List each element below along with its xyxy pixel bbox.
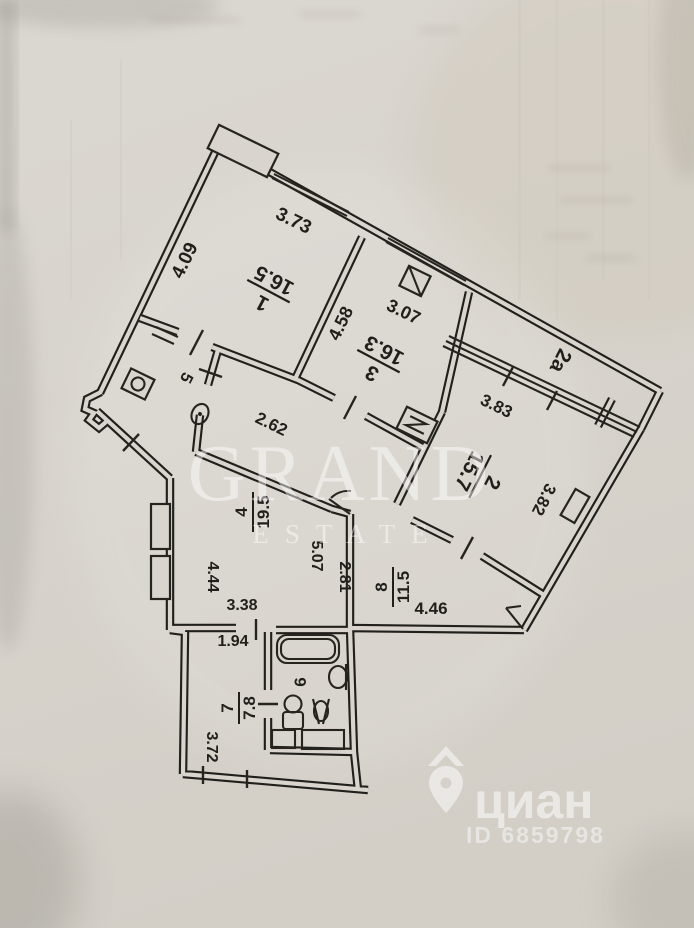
room-label-6: 6 [291,677,310,686]
svg-text:7.8: 7.8 [240,696,259,720]
dim-4.44: 4.44 [204,561,221,592]
portal-watermark-id: ID 6859798 [466,822,605,848]
agency-watermark-name: GRAND [188,430,492,518]
portal-watermark-name: циан [474,773,593,829]
left-wall-pilaster-1 [151,504,170,549]
svg-text:6: 6 [291,677,310,686]
dim-2.81: 2.81 [336,561,353,592]
agency-watermark-sub: ESTATE [252,519,443,549]
floor-plan-photo: 1 16.5 3 16.3 2 15.7 4 19.5 8 11.5 7 7.8 [0,0,694,928]
dim-1.94: 1.94 [217,633,248,650]
floor-plan-drawing: 1 16.5 3 16.3 2 15.7 4 19.5 8 11.5 7 7.8 [0,0,694,928]
dim-3.72: 3.72 [203,731,220,762]
dim-3.38: 3.38 [226,597,257,614]
left-wall-pilaster-2 [151,556,170,599]
svg-text:11.5: 11.5 [394,571,413,603]
dim-4.46: 4.46 [414,599,447,618]
svg-text:8: 8 [372,582,391,591]
svg-text:7: 7 [218,703,237,712]
